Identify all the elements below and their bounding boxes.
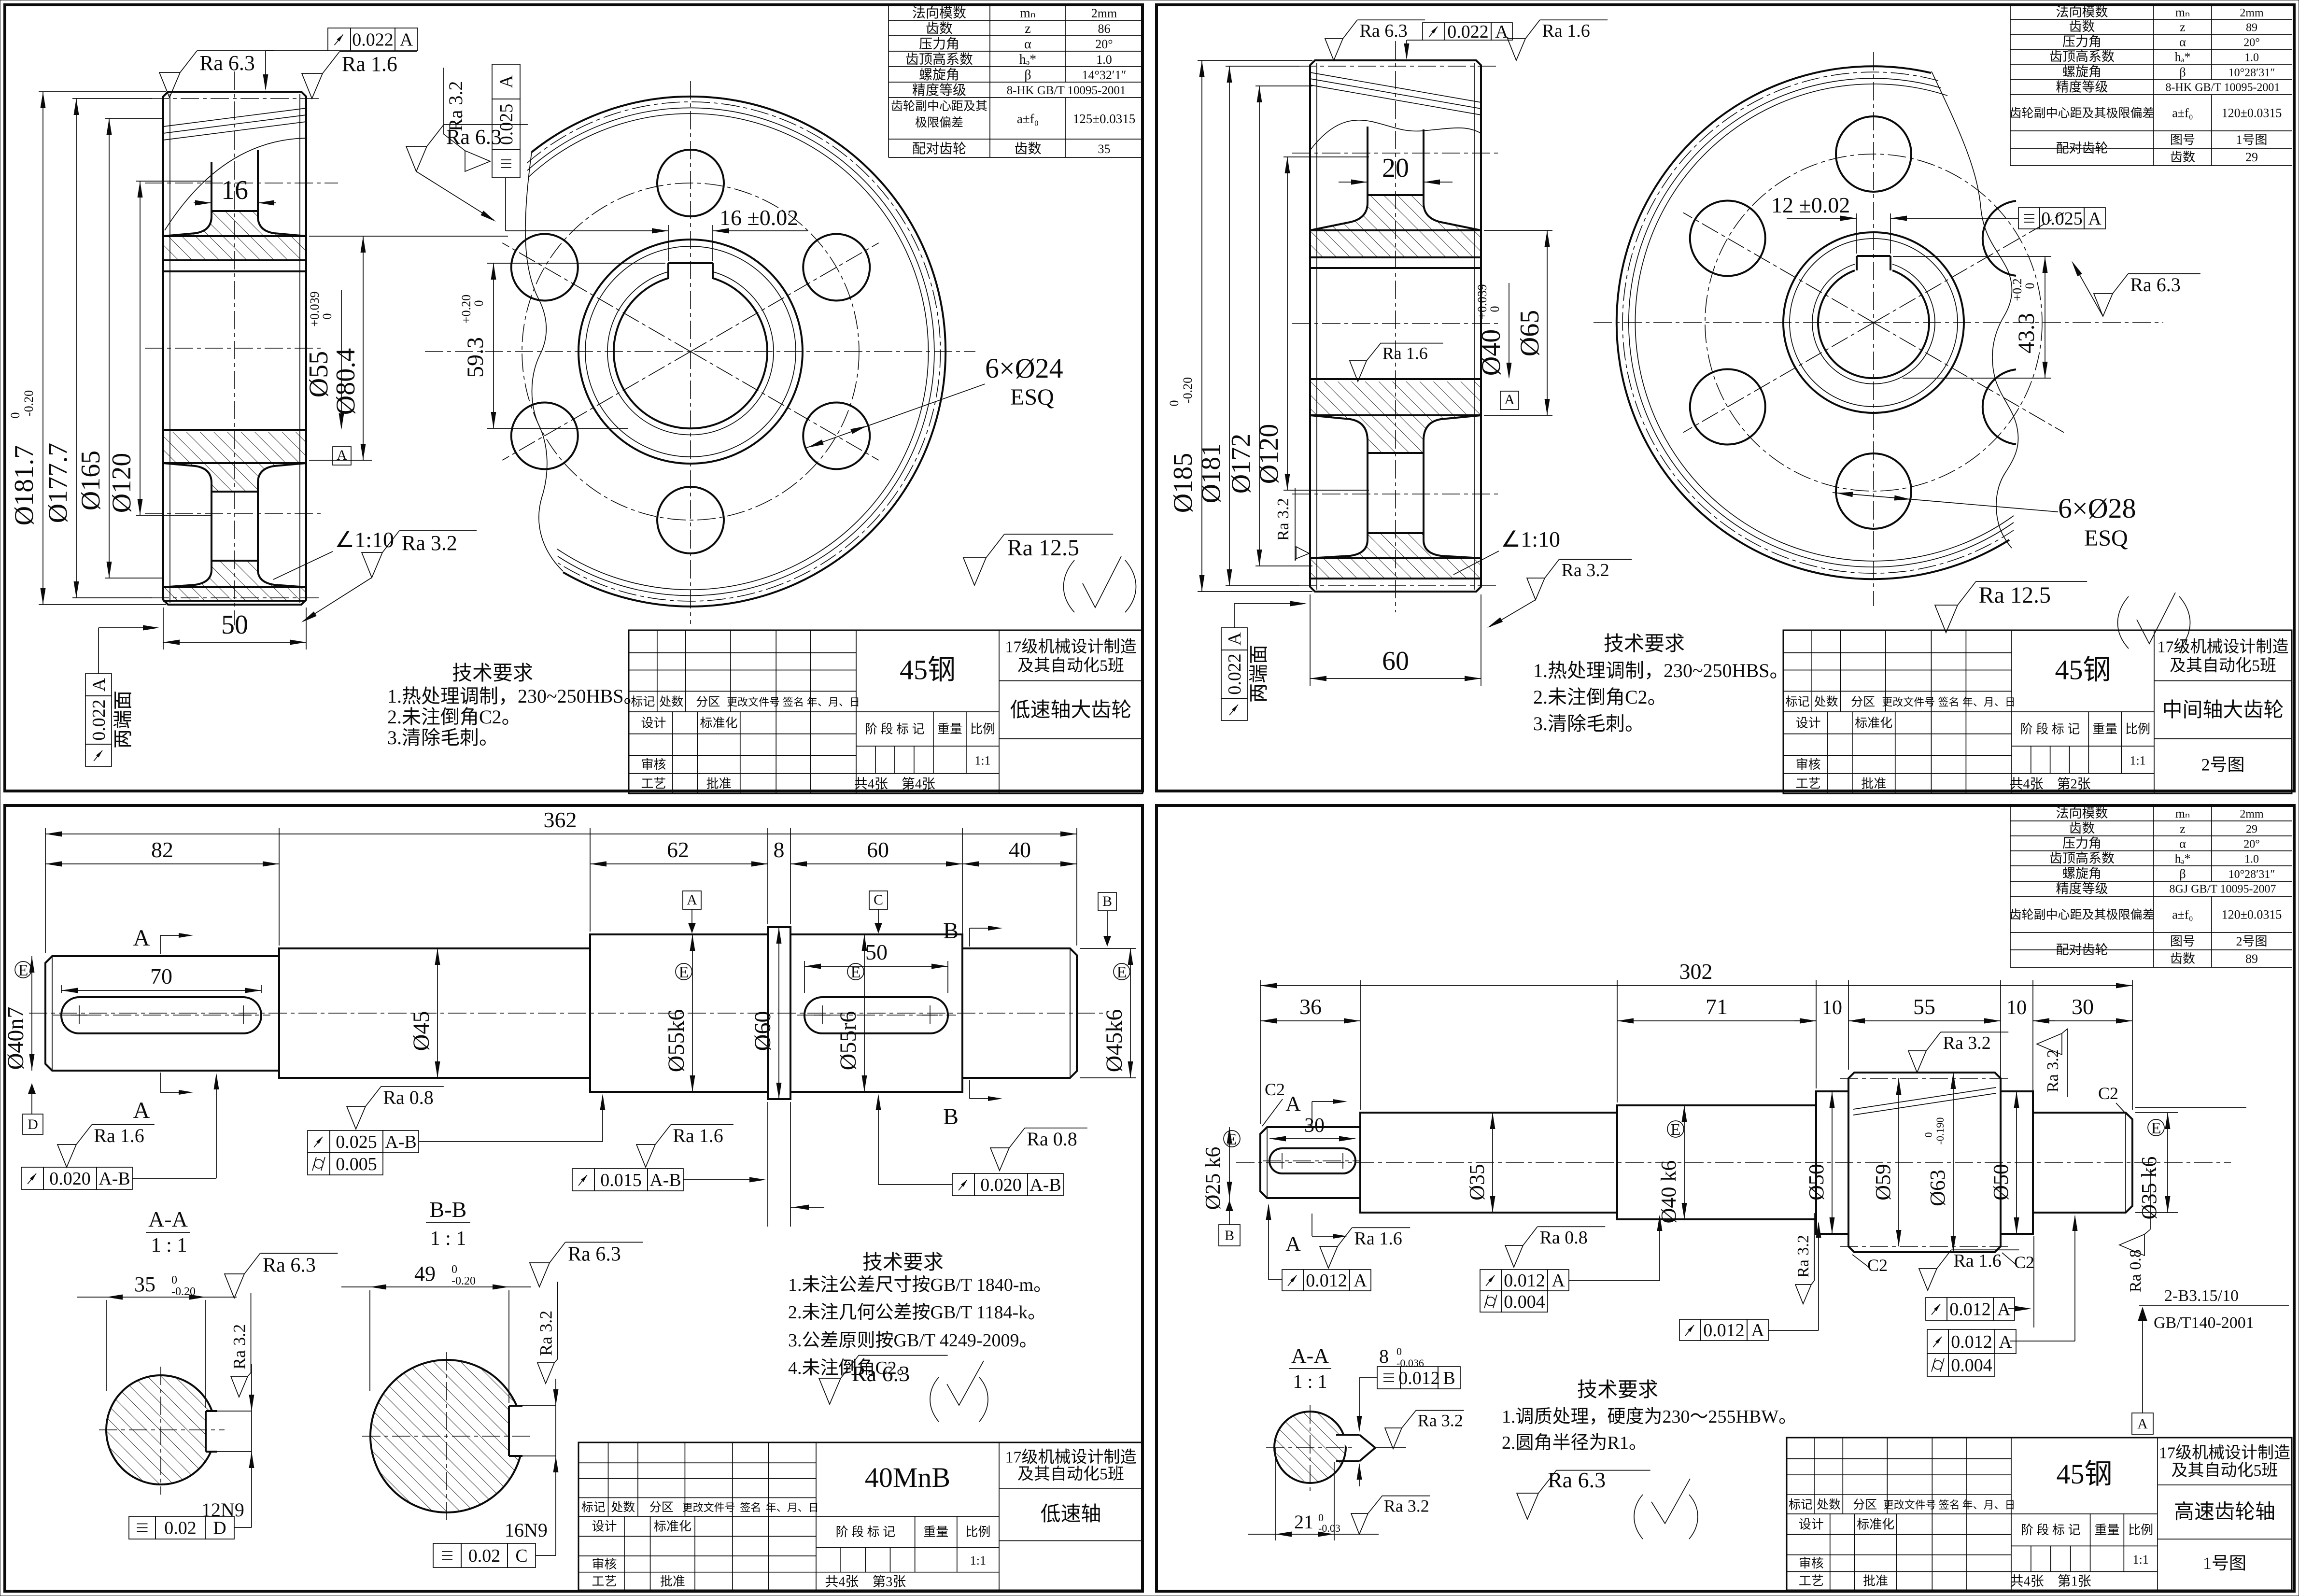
svg-text:及其自动化5班: 及其自动化5班 [1017, 657, 1124, 675]
svg-text:A: A [1504, 392, 1515, 408]
svg-text:mₙ: mₙ [2175, 5, 2190, 19]
svg-text:分区: 分区 [649, 1501, 674, 1514]
svg-text:B: B [943, 918, 959, 944]
svg-text:Ra 1.6: Ra 1.6 [1954, 1251, 2002, 1271]
svg-text:Ra 6.3: Ra 6.3 [568, 1243, 621, 1266]
svg-text:10: 10 [2006, 997, 2027, 1019]
svg-text:螺旋角: 螺旋角 [919, 67, 959, 83]
svg-text:Ø35: Ø35 [1465, 1164, 1489, 1201]
svg-text:6×Ø24: 6×Ø24 [985, 353, 1063, 384]
svg-text:60: 60 [867, 837, 889, 862]
svg-text:标准化: 标准化 [1857, 1517, 1894, 1531]
svg-text:8-HK GB/T 10095-2001: 8-HK GB/T 10095-2001 [1007, 84, 1126, 97]
svg-text:年、月、日: 年、月、日 [1962, 696, 2016, 708]
svg-text:A: A [496, 75, 517, 88]
svg-text:3.公差原则按GB/T 4249-2009。: 3.公差原则按GB/T 4249-2009。 [788, 1330, 1038, 1351]
svg-text:年、月、日: 年、月、日 [1962, 1499, 2015, 1511]
svg-text:阶 段 标 记: 阶 段 标 记 [2021, 1523, 2081, 1537]
svg-text:齿顶高系数: 齿顶高系数 [905, 52, 973, 67]
svg-text:Ø55r6: Ø55r6 [835, 1011, 861, 1071]
svg-text:法向模数: 法向模数 [2056, 806, 2108, 820]
svg-text:20°: 20° [2243, 838, 2260, 851]
svg-text:3.清除毛刺。: 3.清除毛刺。 [387, 727, 498, 749]
svg-text:精度等级: 精度等级 [912, 83, 966, 98]
svg-text:年、月、日: 年、月、日 [807, 696, 860, 708]
svg-text:50: 50 [221, 610, 248, 640]
svg-text:齿轮副中心距及其极限偏差: 齿轮副中心距及其极限偏差 [2009, 908, 2154, 922]
svg-text:0.012: 0.012 [1398, 1368, 1440, 1388]
svg-text:0: 0 [2023, 283, 2037, 289]
svg-text:6×Ø28: 6×Ø28 [2058, 493, 2136, 524]
svg-text:30: 30 [1304, 1115, 1325, 1137]
svg-text:Ra 3.2: Ra 3.2 [2044, 1049, 2062, 1092]
svg-text:Ø55k6: Ø55k6 [663, 1009, 689, 1073]
svg-text:比例: 比例 [970, 722, 995, 736]
svg-text:1号图: 1号图 [2203, 1554, 2246, 1573]
svg-text:Ra 1.6: Ra 1.6 [94, 1125, 144, 1146]
svg-text:工艺: 工艺 [1799, 1574, 1824, 1588]
svg-text:Ra 6.3: Ra 6.3 [1360, 21, 1408, 41]
svg-text:A: A [1997, 1299, 2011, 1320]
svg-text:125±0.0315: 125±0.0315 [1073, 112, 1136, 126]
svg-text:审核: 审核 [1796, 758, 1821, 772]
svg-text:40MnB: 40MnB [865, 1462, 950, 1493]
svg-text:审核: 审核 [641, 758, 666, 772]
svg-text:8GJ GB/T 10095-2007: 8GJ GB/T 10095-2007 [2170, 883, 2276, 896]
svg-text:α: α [2179, 837, 2186, 851]
svg-text:16: 16 [221, 175, 248, 205]
svg-text:0.020: 0.020 [49, 1169, 91, 1189]
svg-text:E: E [1227, 1130, 1237, 1148]
svg-text:36: 36 [1299, 994, 1322, 1019]
svg-text:A: A [1551, 1271, 1565, 1291]
svg-text:图号: 图号 [2170, 934, 2195, 948]
svg-text:D: D [28, 1116, 38, 1132]
svg-text:标准化: 标准化 [700, 716, 738, 730]
svg-text:比例: 比例 [2125, 722, 2150, 736]
svg-text:16N9: 16N9 [505, 1519, 548, 1541]
svg-text:-0.20: -0.20 [171, 1285, 196, 1298]
svg-text:mₙ: mₙ [1020, 6, 1036, 21]
svg-text:8: 8 [774, 837, 785, 862]
svg-text:-0.20: -0.20 [451, 1275, 476, 1287]
svg-text:批准: 批准 [1863, 1574, 1888, 1588]
svg-text:+0.20: +0.20 [459, 295, 473, 324]
svg-text:0: 0 [1167, 400, 1181, 407]
svg-text:处数: 处数 [611, 1501, 635, 1514]
svg-text:0: 0 [171, 1274, 177, 1286]
svg-text:低速轴大齿轮: 低速轴大齿轮 [1010, 699, 1131, 721]
svg-text:Ø63: Ø63 [1926, 1170, 1949, 1206]
svg-text:21: 21 [1294, 1511, 1313, 1533]
svg-text:2.未注倒角C2。: 2.未注倒角C2。 [1533, 686, 1667, 708]
svg-text:Ø45: Ø45 [409, 1011, 434, 1051]
svg-text:A: A [687, 892, 697, 908]
svg-text:29: 29 [2245, 150, 2258, 164]
svg-text:E: E [2151, 1119, 2161, 1137]
svg-text:17级机械设计制造: 17级机械设计制造 [2158, 638, 2289, 656]
svg-text:A-B: A-B [385, 1132, 416, 1152]
svg-text:30: 30 [2072, 994, 2094, 1019]
svg-text:Ø181.7: Ø181.7 [9, 445, 39, 525]
svg-text:标准化: 标准化 [654, 1520, 691, 1534]
svg-text:A-B: A-B [1030, 1175, 1061, 1195]
svg-text:GB/T140-2001: GB/T140-2001 [2154, 1314, 2254, 1332]
svg-text:Ra 1.6: Ra 1.6 [342, 52, 397, 76]
svg-text:法向模数: 法向模数 [912, 5, 966, 21]
svg-text:重量: 重量 [923, 1525, 948, 1539]
svg-text:签名: 签名 [1939, 1499, 1960, 1511]
svg-text:20: 20 [1382, 153, 1409, 183]
svg-text:1:1: 1:1 [974, 753, 990, 767]
svg-text:55: 55 [1913, 994, 1935, 1019]
svg-text:-0.03: -0.03 [1318, 1522, 1340, 1534]
svg-text:分区: 分区 [1853, 1498, 1877, 1511]
svg-text:工艺: 工艺 [1796, 777, 1821, 791]
svg-text:40: 40 [1009, 837, 1031, 862]
svg-text:C: C [515, 1546, 527, 1566]
svg-text:z: z [2180, 822, 2186, 836]
svg-text:16 ±0.02: 16 ±0.02 [719, 205, 798, 230]
svg-text:1.0: 1.0 [1096, 53, 1112, 67]
svg-text:Ø65: Ø65 [1515, 310, 1545, 356]
svg-text:标记: 标记 [581, 1501, 606, 1514]
svg-text:Ø181: Ø181 [1196, 443, 1226, 503]
svg-text:0: 0 [8, 412, 22, 419]
svg-text:10°28′31″: 10°28′31″ [2228, 67, 2275, 79]
svg-text:z: z [1025, 21, 1030, 36]
svg-text:hₔ*: hₔ* [2175, 50, 2191, 64]
svg-text:批准: 批准 [1861, 777, 1886, 791]
svg-text:B: B [1225, 1228, 1234, 1243]
svg-text:β: β [1024, 68, 1031, 83]
svg-text:0.02: 0.02 [164, 1518, 197, 1539]
svg-text:A: A [2137, 1416, 2148, 1432]
svg-text:A: A [133, 925, 150, 951]
svg-text:C2: C2 [1867, 1256, 1888, 1275]
svg-text:Ra 3.2: Ra 3.2 [1562, 560, 1609, 580]
svg-text:A: A [2088, 209, 2102, 229]
svg-text:ESQ: ESQ [1010, 384, 1054, 410]
svg-text:β: β [2179, 65, 2186, 79]
svg-text:比例: 比例 [965, 1525, 990, 1539]
svg-text:阶 段 标 记: 阶 段 标 记 [865, 722, 925, 736]
svg-text:8-HK GB/T 10095-2001: 8-HK GB/T 10095-2001 [2166, 82, 2280, 94]
svg-text:50: 50 [865, 940, 888, 964]
svg-text:35: 35 [1098, 142, 1111, 156]
svg-text:1.热处理调制，230~250HBS。: 1.热处理调制，230~250HBS。 [387, 685, 643, 707]
svg-text:齿数: 齿数 [2069, 821, 2095, 836]
svg-text:0: 0 [451, 1263, 457, 1276]
svg-text:Ø55: Ø55 [304, 351, 334, 397]
svg-text:压力角: 压力角 [2062, 35, 2102, 49]
svg-text:2.未注几何公差按GB/T 1184-k。: 2.未注几何公差按GB/T 1184-k。 [788, 1302, 1046, 1323]
svg-text:阶 段 标 记: 阶 段 标 记 [836, 1525, 896, 1539]
svg-text:Ø165: Ø165 [76, 451, 106, 510]
svg-text:12N9: 12N9 [201, 1499, 244, 1521]
svg-text:1.0: 1.0 [2244, 52, 2259, 64]
svg-text:A: A [400, 30, 413, 50]
svg-text:+0.039: +0.039 [308, 291, 322, 326]
svg-text:配对齿轮: 配对齿轮 [912, 141, 966, 156]
svg-text:齿顶高系数: 齿顶高系数 [2049, 851, 2115, 866]
svg-text:0.012: 0.012 [1703, 1320, 1745, 1341]
svg-text:2mm: 2mm [2240, 808, 2264, 820]
svg-text:70: 70 [150, 964, 172, 989]
svg-text:A: A [1495, 22, 1509, 42]
svg-text:Ø120: Ø120 [1254, 424, 1284, 484]
svg-text:17级机械设计制造: 17级机械设计制造 [1005, 638, 1137, 656]
svg-text:α: α [1024, 37, 1031, 52]
svg-text:Ra 3.2: Ra 3.2 [1384, 1496, 1429, 1515]
svg-text:Ra 0.8: Ra 0.8 [383, 1087, 433, 1108]
svg-text:A-B: A-B [99, 1169, 130, 1189]
svg-text:1.未注公差尺寸按GB/T 1840-m。: 1.未注公差尺寸按GB/T 1840-m。 [788, 1275, 1052, 1295]
svg-text:β: β [2179, 867, 2186, 881]
svg-text:+0.039: +0.039 [1475, 284, 1489, 319]
svg-text:E: E [18, 961, 28, 979]
svg-text:A: A [1354, 1271, 1367, 1291]
svg-text:C2: C2 [1265, 1080, 1285, 1099]
svg-text:处数: 处数 [1814, 695, 1838, 709]
svg-text:59.3: 59.3 [463, 337, 488, 378]
svg-text:∠1:10: ∠1:10 [335, 527, 394, 552]
svg-text:齿数: 齿数 [2170, 150, 2195, 164]
svg-text:Ra 12.5: Ra 12.5 [1979, 582, 2051, 608]
svg-text:12 ±0.02: 12 ±0.02 [1771, 193, 1850, 217]
svg-text:2号图: 2号图 [2236, 934, 2267, 948]
svg-text:Ra 1.6: Ra 1.6 [1382, 343, 1428, 363]
svg-text:精度等级: 精度等级 [2056, 80, 2108, 95]
svg-text:齿数: 齿数 [926, 21, 953, 36]
svg-text:B: B [943, 1104, 959, 1130]
svg-text:标记: 标记 [1789, 1498, 1813, 1511]
svg-text:0: 0 [320, 313, 334, 320]
svg-text:图号: 图号 [2170, 133, 2195, 147]
svg-text:B-B: B-B [430, 1197, 467, 1222]
svg-text:Ra 3.2: Ra 3.2 [1794, 1235, 1812, 1278]
svg-text:62: 62 [667, 837, 689, 862]
svg-text:10: 10 [1822, 997, 1842, 1019]
svg-text:2mm: 2mm [2240, 7, 2264, 19]
svg-text:C2: C2 [2098, 1084, 2118, 1103]
svg-text:C: C [874, 892, 883, 908]
svg-text:0.025: 0.025 [2041, 209, 2083, 229]
svg-text:重量: 重量 [937, 722, 962, 736]
svg-text:批准: 批准 [706, 777, 732, 791]
svg-text:Ø40n7: Ø40n7 [3, 1007, 28, 1070]
svg-text:审核: 审核 [1799, 1556, 1824, 1570]
svg-text:0.012: 0.012 [1306, 1271, 1347, 1291]
svg-text:配对齿轮: 配对齿轮 [2056, 141, 2108, 155]
svg-text:0.012: 0.012 [1504, 1271, 1545, 1291]
svg-text:17级机械设计制造: 17级机械设计制造 [2159, 1444, 2290, 1462]
svg-text:Ø59: Ø59 [1871, 1164, 1895, 1201]
svg-text:齿轮副中心距及其极限偏差: 齿轮副中心距及其极限偏差 [2009, 107, 2154, 120]
svg-text:45钢: 45钢 [2056, 1458, 2112, 1490]
svg-text:共4张 第2张: 共4张 第2张 [2010, 776, 2091, 791]
svg-text:14°32′1″: 14°32′1″ [1082, 68, 1127, 82]
svg-text:Ra 12.5: Ra 12.5 [1007, 535, 1079, 561]
svg-text:120±0.0315: 120±0.0315 [2222, 908, 2282, 922]
svg-text:更改文件号: 更改文件号 [1882, 696, 1935, 708]
svg-text:2mm: 2mm [1091, 6, 1117, 20]
svg-text:∠1:10: ∠1:10 [1501, 527, 1560, 551]
svg-text:45钢: 45钢 [2055, 654, 2111, 685]
svg-text:0.020: 0.020 [980, 1175, 1022, 1195]
svg-text:45钢: 45钢 [900, 654, 956, 685]
svg-text:Ø60: Ø60 [750, 1011, 776, 1051]
svg-text:A: A [1999, 1332, 2012, 1352]
svg-text:302: 302 [1679, 959, 1713, 984]
svg-text:43.3: 43.3 [2014, 313, 2039, 353]
svg-text:Ra 3.2: Ra 3.2 [1943, 1033, 1991, 1053]
svg-text:Ra 6.3: Ra 6.3 [852, 1361, 910, 1386]
svg-text:1:1: 1:1 [970, 1554, 986, 1568]
svg-text:0.025: 0.025 [336, 1132, 377, 1152]
svg-text:Ø25 k6: Ø25 k6 [1201, 1147, 1225, 1210]
svg-text:压力角: 压力角 [919, 36, 959, 52]
svg-text:签名: 签名 [740, 1502, 761, 1514]
svg-text:Ra 3.2: Ra 3.2 [536, 1311, 556, 1356]
svg-text:8: 8 [1379, 1345, 1389, 1367]
svg-text:0.004: 0.004 [1951, 1356, 1992, 1376]
svg-text:及其自动化5班: 及其自动化5班 [2170, 657, 2276, 675]
svg-text:重量: 重量 [2092, 722, 2117, 736]
svg-text:2.圆角半径为R1。: 2.圆角半径为R1。 [1502, 1433, 1647, 1453]
svg-text:C2: C2 [2014, 1253, 2034, 1272]
svg-text:分区: 分区 [1851, 695, 1875, 709]
svg-text:Ø177.7: Ø177.7 [43, 443, 73, 523]
svg-text:Ra 3.2: Ra 3.2 [1274, 498, 1292, 541]
svg-text:Ra 3.2: Ra 3.2 [445, 81, 466, 131]
svg-text:10°28′31″: 10°28′31″ [2228, 868, 2275, 881]
svg-text:0.022: 0.022 [352, 30, 394, 50]
svg-text:0.022: 0.022 [89, 699, 109, 741]
svg-text:更改文件号: 更改文件号 [1883, 1499, 1936, 1511]
svg-text:0: 0 [1396, 1345, 1402, 1357]
svg-text:B: B [1102, 893, 1112, 909]
svg-text:Ø185: Ø185 [1168, 453, 1198, 513]
svg-text:签名: 签名 [1938, 696, 1959, 708]
svg-text:0: 0 [472, 300, 486, 307]
svg-text:1:1: 1:1 [2133, 1553, 2149, 1567]
svg-text:及其自动化5班: 及其自动化5班 [1017, 1465, 1124, 1483]
svg-text:A-A: A-A [1291, 1344, 1329, 1368]
svg-text:极限偏差: 极限偏差 [915, 116, 963, 129]
svg-text:1 : 1: 1 : 1 [430, 1228, 466, 1250]
svg-text:2-B3.15/10: 2-B3.15/10 [2164, 1287, 2239, 1305]
svg-text:49: 49 [414, 1262, 436, 1285]
svg-text:0.022: 0.022 [1447, 22, 1489, 42]
svg-text:Ø172: Ø172 [1226, 434, 1256, 494]
svg-text:E: E [679, 963, 689, 981]
svg-text:35: 35 [134, 1272, 155, 1296]
svg-text:0.012: 0.012 [1949, 1299, 1991, 1320]
svg-text:0: 0 [1922, 1132, 1934, 1138]
svg-text:1.调质处理，硬度为230～255HBW。: 1.调质处理，硬度为230～255HBW。 [1502, 1407, 1797, 1427]
svg-text:齿轮副中心距及其: 齿轮副中心距及其 [891, 99, 987, 113]
svg-text:两端面: 两端面 [1248, 645, 1269, 703]
svg-text:1.热处理调制，230~250HBS。: 1.热处理调制，230~250HBS。 [1533, 660, 1789, 681]
svg-text:压力角: 压力角 [2062, 836, 2102, 851]
svg-text:hₔ*: hₔ* [2175, 852, 2191, 866]
svg-text:标准化: 标准化 [1855, 716, 1892, 730]
svg-text:Ra 6.3: Ra 6.3 [199, 51, 255, 75]
svg-text:工艺: 工艺 [641, 777, 666, 791]
svg-text:-0.190: -0.190 [1934, 1117, 1946, 1145]
svg-text:设计: 设计 [592, 1520, 617, 1534]
svg-text:ESQ: ESQ [2084, 525, 2128, 551]
svg-text:签名: 签名 [783, 696, 804, 708]
svg-text:中间轴大齿轮: 中间轴大齿轮 [2162, 699, 2284, 721]
svg-text:0: 0 [1488, 306, 1502, 312]
svg-text:A: A [1285, 1232, 1301, 1256]
svg-text:齿数: 齿数 [2069, 20, 2095, 34]
svg-text:-0.20: -0.20 [22, 390, 36, 416]
svg-text:螺旋角: 螺旋角 [2062, 65, 2102, 79]
svg-text:标记: 标记 [1786, 695, 1810, 709]
svg-text:年、月、日: 年、月、日 [766, 1502, 819, 1514]
svg-text:A: A [1225, 632, 1245, 646]
svg-text:A: A [1285, 1092, 1301, 1116]
svg-text:α: α [2179, 35, 2186, 49]
svg-text:a±f₀: a±f₀ [1017, 112, 1039, 126]
svg-text:Ø50: Ø50 [1805, 1164, 1828, 1201]
svg-text:Ø120: Ø120 [107, 453, 137, 513]
svg-text:Ra 1.6: Ra 1.6 [1542, 21, 1590, 41]
svg-text:Ø45k6: Ø45k6 [1101, 1009, 1127, 1073]
svg-text:批准: 批准 [660, 1574, 685, 1588]
svg-text:Ra 6.3: Ra 6.3 [446, 125, 502, 149]
svg-text:设计: 设计 [1796, 716, 1821, 730]
svg-text:E: E [1117, 963, 1127, 981]
svg-text:Ra 3.2: Ra 3.2 [402, 531, 457, 555]
svg-text:Ra 0.8: Ra 0.8 [1027, 1128, 1077, 1150]
svg-text:1.0: 1.0 [2244, 853, 2259, 866]
svg-text:60: 60 [1382, 646, 1409, 676]
svg-text:齿数: 齿数 [1014, 141, 1041, 156]
svg-text:螺旋角: 螺旋角 [2062, 866, 2102, 881]
svg-text:A: A [1751, 1320, 1764, 1341]
svg-text:处数: 处数 [1817, 1498, 1841, 1511]
svg-text:B: B [1443, 1368, 1455, 1388]
svg-text:齿数: 齿数 [2170, 952, 2195, 966]
svg-text:89: 89 [2245, 952, 2258, 966]
svg-text:0.004: 0.004 [1504, 1292, 1545, 1312]
svg-text:362: 362 [544, 807, 577, 832]
svg-text:Ø40 k6: Ø40 k6 [1657, 1160, 1680, 1224]
svg-text:A-A: A-A [148, 1207, 188, 1231]
svg-text:0.015: 0.015 [600, 1170, 642, 1190]
svg-text:Ra 0.8: Ra 0.8 [1540, 1228, 1588, 1248]
svg-text:Ra 6.3: Ra 6.3 [1548, 1468, 1606, 1492]
svg-text:0.005: 0.005 [336, 1154, 377, 1174]
svg-text:Ra 3.2: Ra 3.2 [1418, 1411, 1463, 1430]
svg-text:共4张 第4张: 共4张 第4张 [854, 776, 935, 791]
svg-text:71: 71 [1706, 994, 1728, 1019]
svg-text:Ra 1.6: Ra 1.6 [673, 1125, 723, 1146]
svg-text:设计: 设计 [1799, 1517, 1824, 1531]
svg-text:两端面: 两端面 [112, 691, 134, 749]
svg-text:120±0.0315: 120±0.0315 [2222, 106, 2282, 120]
svg-text:1 : 1: 1 : 1 [151, 1234, 187, 1257]
svg-text:配对齿轮: 配对齿轮 [2056, 943, 2108, 957]
svg-text:a±f₀: a±f₀ [2172, 106, 2193, 120]
svg-text:及其自动化5班: 及其自动化5班 [2172, 1461, 2278, 1480]
svg-text:Ra 6.3: Ra 6.3 [2130, 274, 2180, 296]
svg-text:高速齿轮轴: 高速齿轮轴 [2174, 1501, 2275, 1523]
